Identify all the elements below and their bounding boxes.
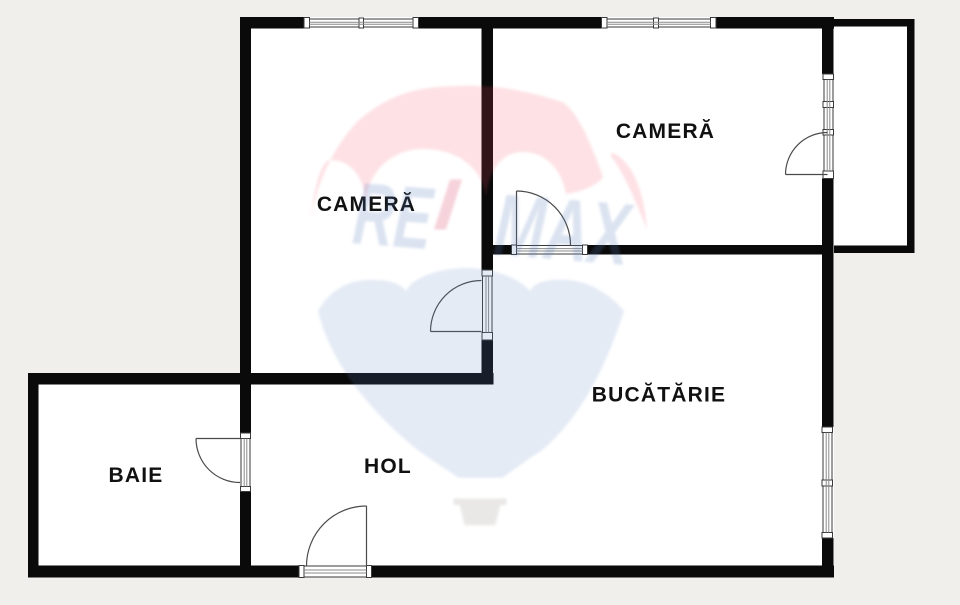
svg-text:RE: RE bbox=[350, 163, 438, 268]
svg-text:BUCĂTĂRIE: BUCĂTĂRIE bbox=[592, 384, 726, 407]
svg-text:MAX: MAX bbox=[491, 177, 637, 286]
svg-text:BAIE: BAIE bbox=[109, 464, 164, 487]
svg-text:CAMERĂ: CAMERĂ bbox=[616, 120, 715, 143]
svg-text:HOL: HOL bbox=[364, 455, 412, 478]
